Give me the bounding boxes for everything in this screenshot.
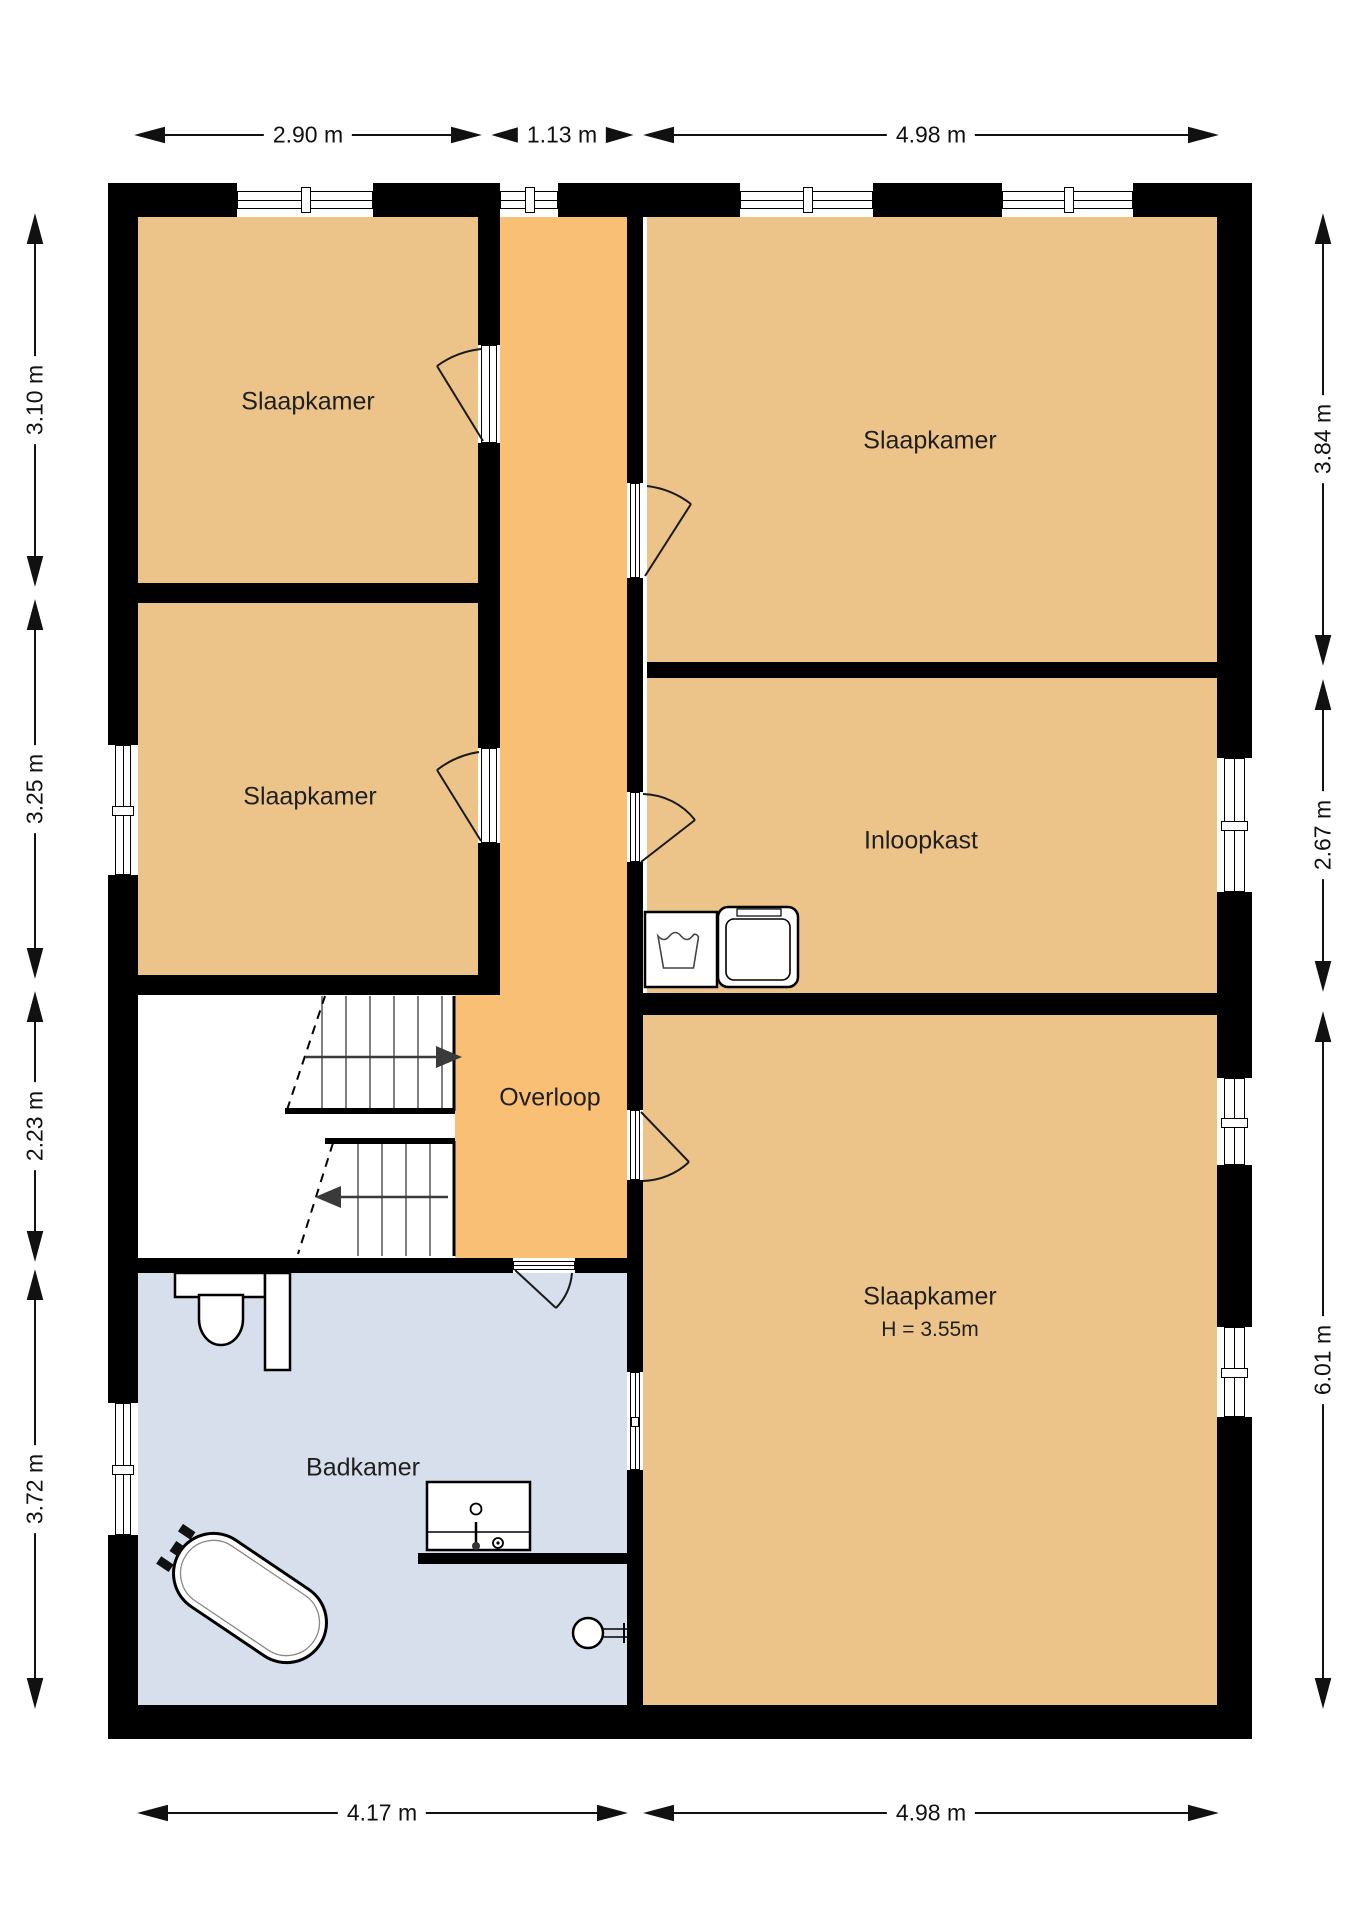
window-top-landing — [500, 183, 558, 217]
wall-bedroom-stairs-divider — [108, 975, 500, 995]
wall-closet-bedroom-divider — [643, 993, 1252, 1015]
room-landing-lower — [455, 995, 627, 1258]
dim-top-2: 1.13 m — [518, 122, 606, 149]
wall-bedroom-closet-divider — [647, 662, 1252, 678]
dim-right-3: 6.01 m — [1310, 1316, 1337, 1404]
label-walk-in-closet: Inloopkast — [864, 827, 978, 856]
wall-corridor-right — [627, 217, 643, 1705]
dim-bottom-1: 4.17 m — [338, 1800, 426, 1827]
dim-left-3: 2.23 m — [22, 1082, 49, 1170]
window-left-bathroom — [108, 1403, 138, 1535]
label-bedroom-top-left: Slaapkamer — [241, 388, 374, 417]
wall-shower-partition — [418, 1553, 643, 1564]
wall-bathroom-north — [108, 1258, 513, 1273]
label-bedroom-bottom-right: Slaapkamer — [863, 1283, 996, 1312]
label-bathroom: Badkamer — [306, 1454, 420, 1483]
window-top-bedroom-left — [237, 183, 373, 217]
wall-bathroom-north-stub — [575, 1258, 643, 1273]
door-leaf-closet — [627, 792, 643, 862]
dim-top-3: 4.98 m — [887, 122, 975, 149]
dim-bottom-2: 4.98 m — [887, 1800, 975, 1827]
door-leaf-bedroom-top-left — [478, 345, 500, 443]
door-leaf-bathroom — [513, 1258, 575, 1273]
label-bedroom-height-note: H = 3.55m — [881, 1318, 978, 1342]
dimension-lines-bottom — [141, 1806, 1215, 1820]
label-bedroom-mid-left: Slaapkamer — [243, 783, 376, 812]
door-leaf-bedroom-top-right — [627, 483, 643, 578]
dim-right-2: 2.67 m — [1310, 791, 1337, 879]
window-right-bedroom-1 — [1217, 1078, 1252, 1165]
dim-left-1: 3.10 m — [22, 356, 49, 444]
label-landing: Overloop — [499, 1084, 600, 1113]
window-right-closet — [1217, 758, 1252, 892]
wall-bedrooms-left-divider — [138, 583, 500, 603]
room-bedroom-bottom-right — [643, 1015, 1217, 1705]
dim-left-4: 3.72 m — [22, 1445, 49, 1533]
door-leaf-bedroom-mid-left — [478, 748, 500, 843]
wall-corridor-left — [478, 217, 500, 995]
floor-plan: Slaapkamer Slaapkamer Slaapkamer Inloopk… — [0, 0, 1358, 1920]
dim-right-1: 3.84 m — [1310, 395, 1337, 483]
label-bedroom-top-right: Slaapkamer — [863, 427, 996, 456]
stairwell-area — [138, 995, 455, 1258]
wall-outer-bottom — [108, 1705, 1252, 1739]
dim-left-2: 3.25 m — [22, 745, 49, 833]
dim-top-1: 2.90 m — [264, 122, 352, 149]
room-landing-upper — [500, 217, 627, 995]
window-left-bedroom — [108, 745, 138, 875]
window-right-bedroom-2 — [1217, 1327, 1252, 1417]
window-bathroom-bedroom-internal — [627, 1372, 643, 1470]
wall-outer-right — [1217, 183, 1252, 1739]
window-top-bedroom-right-1 — [740, 183, 873, 217]
door-leaf-bedroom-bottom-right — [627, 1110, 643, 1180]
window-top-bedroom-right-2 — [1002, 183, 1133, 217]
